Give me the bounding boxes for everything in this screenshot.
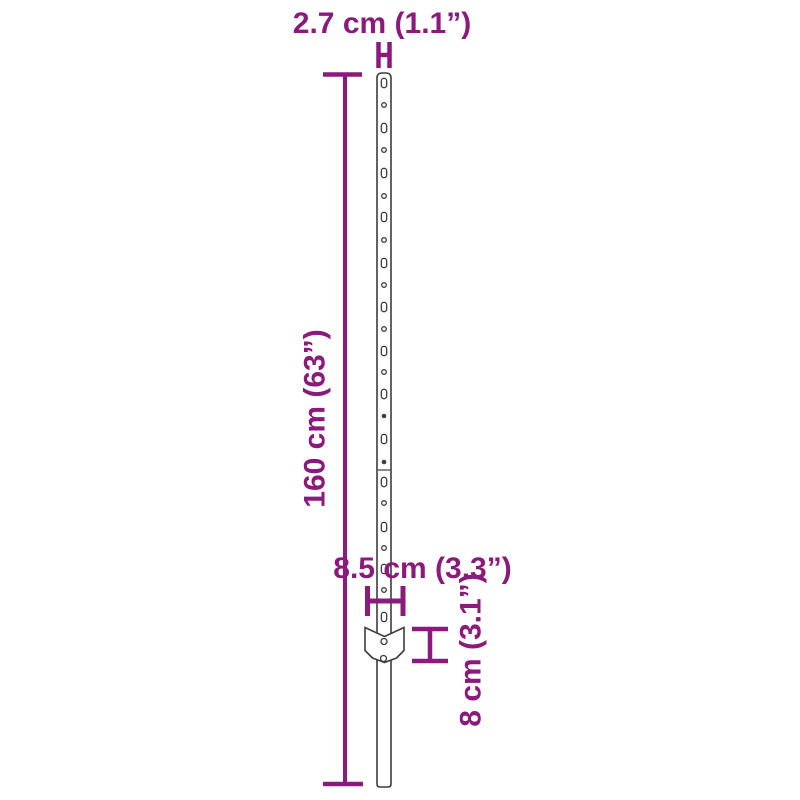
- dim-plate-height: 8 cm (3.1”): [412, 573, 488, 726]
- post-slot-hole: [381, 78, 386, 87]
- post-slot-hole: [381, 302, 386, 311]
- dim-post-height-label: 160 cm (63”): [299, 329, 332, 507]
- post-round-hole: [382, 238, 387, 243]
- post-slot-hole: [381, 612, 386, 621]
- post-round-hole: [382, 588, 387, 593]
- product-dimension-diagram: 2.7 cm (1.1”) 160 cm (63”) 8.5 cm (3.3”)…: [0, 0, 800, 800]
- dim-post-width-bracket: [379, 42, 390, 68]
- post-slot-hole: [381, 389, 386, 398]
- post-round-hole: [382, 414, 387, 419]
- post-round-hole: [382, 546, 387, 551]
- post-slot-hole: [381, 123, 386, 132]
- post-slot-hole: [381, 522, 386, 531]
- dim-post-width-label: 2.7 cm (1.1”): [293, 7, 471, 40]
- post-slot-hole: [381, 212, 386, 221]
- post-round-hole: [382, 370, 387, 375]
- plate-hole: [381, 656, 387, 662]
- dim-post-height: 160 cm (63”): [299, 75, 364, 785]
- post-slot-hole: [381, 346, 386, 355]
- post-round-hole: [382, 283, 387, 288]
- post-round-hole: [382, 327, 387, 332]
- dim-post-width: 2.7 cm (1.1”): [293, 7, 471, 68]
- post-slot-hole: [381, 258, 386, 267]
- post-round-hole: [382, 103, 387, 108]
- post-round-hole: [382, 148, 387, 153]
- post-slot-hole: [381, 477, 386, 486]
- plate-hole: [381, 639, 387, 645]
- post-outline: [377, 73, 391, 787]
- dim-plate-height-bracket: [412, 629, 448, 661]
- post-round-hole: [382, 460, 387, 465]
- post-slot-hole: [381, 168, 386, 177]
- dim-plate-height-label: 8 cm (3.1”): [455, 573, 488, 726]
- post-round-hole: [382, 194, 387, 199]
- post-slot-hole: [381, 434, 386, 443]
- post-round-hole: [382, 501, 387, 506]
